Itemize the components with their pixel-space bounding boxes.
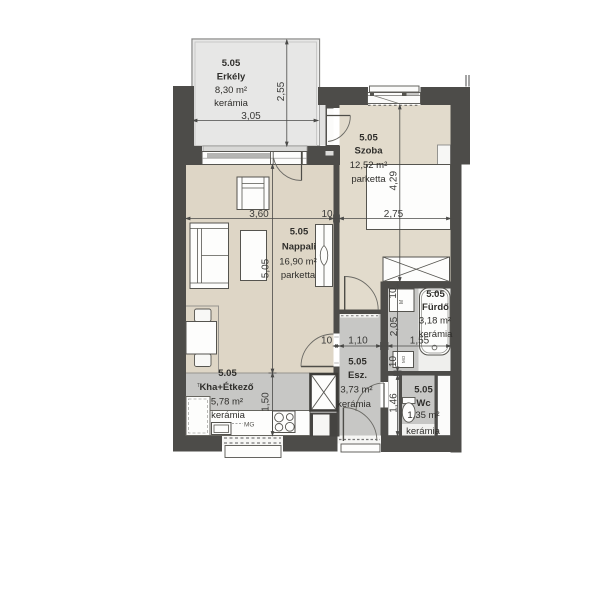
svg-text:Kha+Étkező: Kha+Étkező [199, 382, 253, 393]
svg-text:5.05: 5.05 [359, 132, 378, 143]
svg-text:2,55: 2,55 [276, 81, 287, 101]
svg-text:5,78 m²: 5,78 m² [211, 397, 243, 408]
svg-text:12,52 m²: 12,52 m² [350, 160, 388, 171]
svg-text:5.05: 5.05 [222, 58, 241, 69]
svg-text:1,10: 1,10 [348, 336, 368, 347]
svg-text:T: T [197, 383, 200, 389]
svg-text:MG: MG [244, 422, 254, 429]
svg-text:kerámia: kerámia [211, 410, 246, 421]
svg-text:10: 10 [388, 356, 399, 368]
svg-text:Fürdő: Fürdő [422, 302, 449, 313]
svg-text:3,18 m²: 3,18 m² [419, 316, 451, 327]
svg-text:Esz.: Esz. [348, 370, 367, 381]
svg-text:5.05: 5.05 [290, 227, 309, 238]
svg-text:1,55: 1,55 [410, 336, 430, 347]
svg-text:10: 10 [321, 209, 333, 220]
svg-text:3,60: 3,60 [249, 209, 269, 220]
svg-text:kerámia: kerámia [214, 98, 249, 109]
svg-text:5,05: 5,05 [260, 258, 271, 278]
svg-text:5.05: 5.05 [218, 368, 237, 379]
svg-text:5.05: 5.05 [426, 289, 445, 300]
svg-text:parketta: parketta [281, 270, 316, 281]
svg-text:8,30 m²: 8,30 m² [215, 85, 247, 96]
svg-text:M: M [399, 300, 405, 304]
svg-text:2,05: 2,05 [389, 316, 400, 336]
svg-text:10: 10 [321, 336, 333, 347]
svg-text:Wc: Wc [416, 398, 430, 409]
svg-text:4,29: 4,29 [388, 171, 399, 191]
svg-text:5.05: 5.05 [348, 357, 367, 368]
svg-text:16,90 m²: 16,90 m² [279, 257, 317, 268]
svg-text:Szoba: Szoba [355, 146, 384, 157]
svg-text:parketta: parketta [351, 174, 386, 185]
svg-text:10: 10 [388, 287, 399, 299]
svg-text:kerámia: kerámia [406, 426, 441, 437]
svg-text:kerámia: kerámia [337, 399, 372, 410]
svg-text:3,73 m²: 3,73 m² [340, 385, 372, 396]
svg-text:1,46: 1,46 [389, 393, 400, 413]
svg-text:2,75: 2,75 [384, 209, 404, 220]
svg-text:Erkély: Erkély [217, 72, 246, 83]
svg-text:1,35 m²: 1,35 m² [407, 410, 439, 421]
svg-text:5.05: 5.05 [414, 385, 433, 396]
svg-text:Nappali: Nappali [282, 242, 316, 253]
svg-text:MO: MO [401, 355, 406, 363]
svg-text:3,05: 3,05 [241, 111, 261, 122]
svg-text:1,50: 1,50 [260, 392, 271, 412]
